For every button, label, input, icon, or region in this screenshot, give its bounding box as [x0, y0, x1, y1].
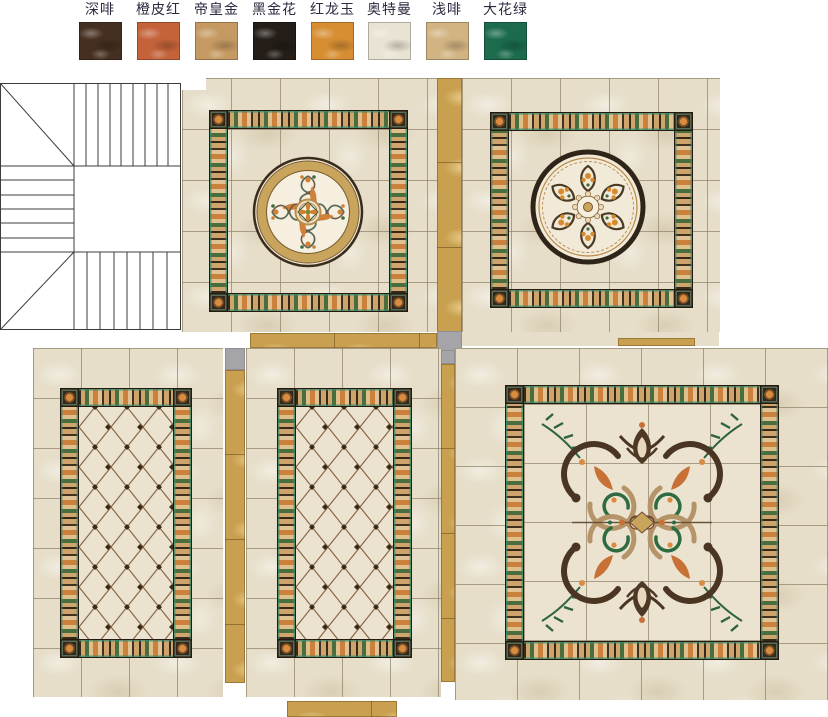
medallion-panel-right [462, 78, 720, 332]
frame-corner [173, 639, 192, 658]
legend-item: 深啡 [78, 2, 122, 60]
staircase-plan [0, 83, 181, 330]
frame-strip [674, 131, 693, 289]
legend-item: 橙皮红 [136, 2, 180, 60]
frame-strip [277, 407, 296, 639]
frame-strip [79, 639, 173, 658]
swatch-label: 橙皮红 [136, 2, 180, 20]
frame-strip [393, 407, 412, 639]
frame-corner [505, 385, 524, 404]
swatch-label: 奥特曼 [367, 2, 411, 20]
frame-corner [277, 639, 296, 658]
frame-strip [79, 388, 173, 407]
frame-corner [760, 385, 779, 404]
frame-strip [209, 129, 228, 293]
frame-strip [524, 385, 760, 404]
gold-divider-vertical-left [225, 370, 245, 683]
material-swatch [137, 22, 180, 60]
legend-item: 奥特曼 [367, 2, 411, 60]
lattice-field [79, 407, 173, 639]
material-swatch [311, 22, 354, 60]
frame-strip [505, 404, 524, 641]
medallion-panel-left [182, 78, 437, 332]
damask-panel [455, 348, 828, 700]
bottom-threshold-strip [287, 701, 397, 717]
frame-corner [209, 293, 228, 312]
frame-corner [393, 388, 412, 407]
gold-divider-horizontal [250, 333, 437, 348]
legend-item: 大花绿 [483, 2, 527, 60]
frame-strip [490, 131, 509, 289]
frame-strip [228, 110, 389, 129]
swatch-label: 深啡 [78, 2, 122, 20]
swatch-label: 黑金花 [252, 2, 296, 20]
swatch-label: 浅啡 [425, 2, 469, 20]
frame-strip [173, 407, 192, 639]
frame-strip [60, 407, 79, 639]
lattice-field [296, 407, 393, 639]
frame-strip [524, 641, 760, 660]
frame-corner [393, 639, 412, 658]
legend-item: 帝皇金 [194, 2, 238, 60]
legend-item: 浅啡 [425, 2, 469, 60]
frame-strip [389, 129, 408, 293]
swatch-label: 帝皇金 [194, 2, 238, 20]
gray-inset-tile [441, 350, 455, 364]
frame-corner [674, 112, 693, 131]
material-swatch [253, 22, 296, 60]
round-medallion-scroll [252, 156, 364, 268]
lattice-panel-left [33, 348, 223, 697]
frame-corner [277, 388, 296, 407]
tile-notch [182, 78, 206, 90]
tile-floor-plan: 深啡 橙皮红 帝皇金 黑金花 红龙玉 奥特曼 浅啡 大花绿 [0, 0, 828, 717]
gold-threshold-small [618, 338, 695, 346]
diamond-lattice-pattern [296, 407, 393, 639]
frame-strip [509, 289, 674, 308]
frame-corner [674, 289, 693, 308]
frame-corner [490, 112, 509, 131]
material-swatch [79, 22, 122, 60]
gold-divider-vertical-right [441, 364, 455, 682]
gold-divider-vertical-top [437, 78, 462, 332]
material-swatch [368, 22, 411, 60]
legend-item: 黑金花 [252, 2, 296, 60]
damask-scroll-pattern [524, 404, 760, 641]
material-swatch [426, 22, 469, 60]
frame-strip [296, 388, 393, 407]
swatch-label: 大花绿 [483, 2, 527, 20]
damask-field [524, 404, 760, 641]
frame-corner [760, 641, 779, 660]
frame-corner [490, 289, 509, 308]
frame-strip [509, 112, 674, 131]
frame-corner [389, 110, 408, 129]
frame-corner [505, 641, 524, 660]
legend-item: 红龙玉 [310, 2, 354, 60]
round-medallion-rosette [530, 149, 646, 265]
material-swatch [484, 22, 527, 60]
frame-strip [760, 404, 779, 641]
frame-corner [209, 110, 228, 129]
frame-strip [296, 639, 393, 658]
diamond-lattice-pattern [79, 407, 173, 639]
lattice-panel-middle [246, 348, 441, 697]
frame-corner [60, 639, 79, 658]
frame-corner [389, 293, 408, 312]
frame-corner [60, 388, 79, 407]
material-swatch [195, 22, 238, 60]
gray-inset-tile [225, 348, 245, 370]
swatch-label: 红龙玉 [310, 2, 354, 20]
frame-corner [173, 388, 192, 407]
frame-strip [228, 293, 389, 312]
